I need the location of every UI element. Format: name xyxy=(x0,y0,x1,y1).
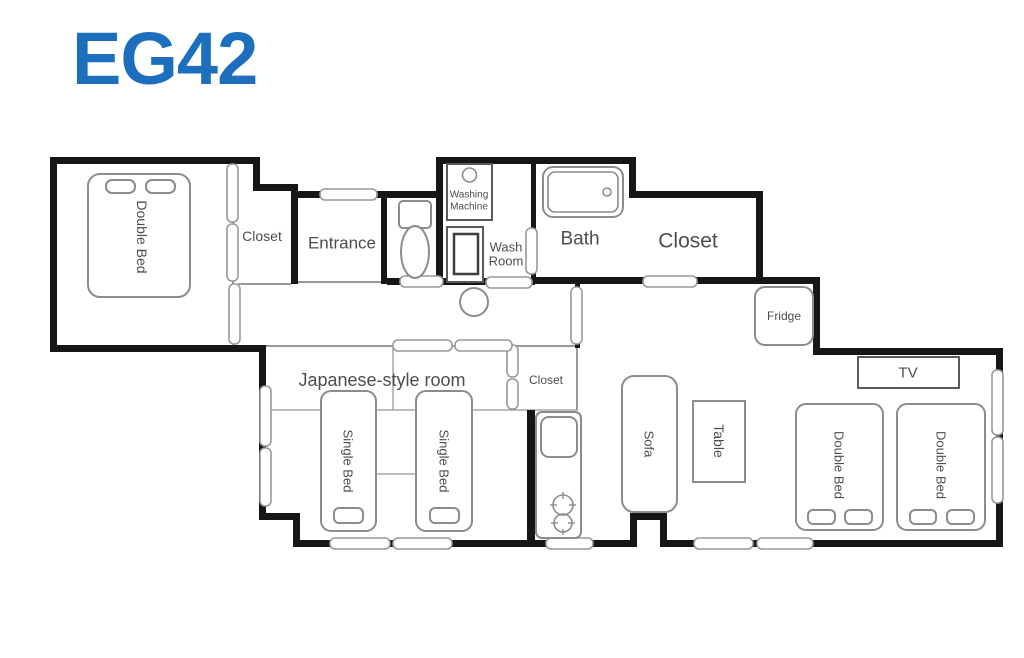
label-washing-machine-line1: Washing xyxy=(450,190,489,201)
label-wash-room-line1: Wash xyxy=(490,240,523,255)
hall-living-door xyxy=(571,287,582,344)
pillow xyxy=(947,510,974,524)
label-single-bed-1: Single Bed xyxy=(341,430,356,493)
label-table: Table xyxy=(711,424,727,458)
window-japanese-left-1 xyxy=(260,386,271,446)
window-right-wall-1 xyxy=(992,370,1003,435)
window-japanese-bottom-1 xyxy=(330,538,390,549)
label-japanese-room: Japanese-style room xyxy=(298,370,465,390)
wall-closet-tr-top xyxy=(629,191,763,198)
wall-fridge-top xyxy=(756,277,820,284)
label-double-bed-1: Double Bed xyxy=(832,431,847,499)
wall-closet-tr-right xyxy=(756,191,763,284)
label-bath: Bath xyxy=(560,229,599,250)
japanese-room-door-2 xyxy=(455,340,512,351)
pillow xyxy=(910,510,936,524)
wall-living-top xyxy=(813,348,1003,355)
label-double-bed-left: Double Bed xyxy=(134,200,150,273)
wall-fridge-right xyxy=(813,277,820,355)
closet-tr-door xyxy=(643,276,697,287)
bath-door xyxy=(526,228,537,274)
pillow xyxy=(146,180,175,193)
floorplan-page: EG42 xyxy=(0,0,1024,658)
label-washing-machine-line2: Machine xyxy=(450,202,488,213)
pillow xyxy=(106,180,135,193)
window-right-wall-2 xyxy=(992,437,1003,503)
window-kitchen-bottom xyxy=(546,538,593,549)
wall-bedroom-bottom xyxy=(50,345,266,352)
label-wash-room-line2: Room xyxy=(489,254,524,269)
sliding-door-bedroom-1 xyxy=(227,164,238,222)
floorplan-drawing: Double Bed Closet Entrance Washing Machi… xyxy=(0,0,1024,658)
label-closet-top-left: Closet xyxy=(242,228,282,244)
wall-toilet-left xyxy=(381,191,387,284)
window-japanese-left-2 xyxy=(260,448,271,506)
wall-closet-tl-right xyxy=(291,184,298,284)
label-entrance: Entrance xyxy=(308,234,376,253)
wall-notch-right xyxy=(660,513,667,547)
window-japanese-bottom-2 xyxy=(393,538,452,549)
window-living-bottom-1 xyxy=(694,538,753,549)
pillow xyxy=(334,508,363,523)
pillow xyxy=(430,508,459,523)
label-tv: TV xyxy=(898,365,917,382)
wall-kitchen-left xyxy=(527,410,535,547)
wall-bedroom-top xyxy=(50,157,260,164)
toilet-bowl xyxy=(401,226,429,278)
pillow xyxy=(808,510,835,524)
japanese-room-door-1 xyxy=(393,340,452,351)
kitchen-sink xyxy=(541,417,577,457)
label-sofa: Sofa xyxy=(642,431,657,459)
sliding-door-bedroom-2 xyxy=(227,224,238,281)
label-closet-middle: Closet xyxy=(529,373,564,387)
hallway-stool xyxy=(460,288,488,316)
label-closet-top-right: Closet xyxy=(658,230,718,253)
toilet-door xyxy=(400,276,443,287)
label-double-bed-2: Double Bed xyxy=(934,431,949,499)
pillow xyxy=(845,510,872,524)
entrance-door xyxy=(320,189,377,200)
washroom-door xyxy=(486,277,532,288)
closet-middle-door-2 xyxy=(507,379,518,409)
sliding-door-bedroom-3 xyxy=(229,284,240,344)
toilet-tank xyxy=(399,201,431,228)
window-living-bottom-2 xyxy=(757,538,813,549)
washroom-sink-basin xyxy=(454,234,478,274)
label-single-bed-2: Single Bed xyxy=(437,430,452,493)
wall-toilet-washing-divider xyxy=(436,157,443,284)
wall-bedroom-left xyxy=(50,157,57,352)
label-fridge: Fridge xyxy=(767,309,801,323)
